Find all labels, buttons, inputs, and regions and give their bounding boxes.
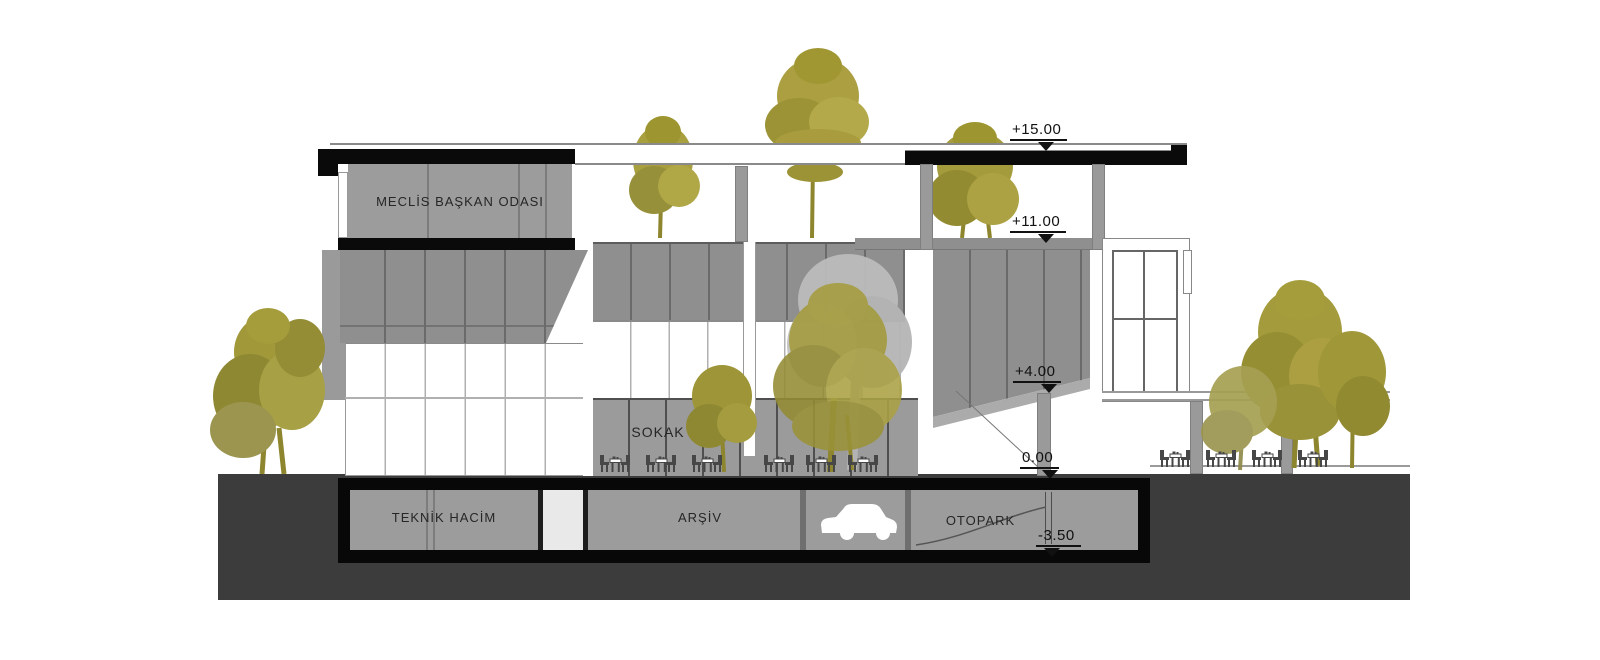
floor-edge-band [933,378,1090,428]
tree-silhouette [629,116,700,238]
canopy [1102,391,1390,401]
elevation-marker-11: +11.00 [1010,213,1066,243]
elevation-marker-minus-350: -3.50 [1036,527,1081,557]
mullion [1112,318,1178,320]
elevation-marker-15: +15.00 [1010,121,1067,151]
column [735,166,748,242]
canopy-column [1190,401,1203,474]
elevation-triangle-icon [1044,548,1060,557]
floor-slab [338,238,575,250]
window-strip [338,172,348,238]
elevation-triangle-icon [1042,470,1058,479]
left-first-floor-facade [340,250,588,343]
elevation-triangle-icon [1038,234,1054,243]
tree-silhouette [1241,280,1357,468]
column-gap [743,242,756,456]
facade-gap [583,242,593,476]
left-wall [322,250,345,400]
glazing-rail [345,397,585,399]
tree-silhouette [210,308,325,474]
elevation-label: -3.50 [1036,527,1081,547]
room-label-sokak: SOKAK [608,424,708,440]
room-label-arsiv: ARŞİV [645,510,755,525]
partition-line [800,490,806,550]
roof-slab [318,149,575,164]
room-label-meclis: MECLİS BAŞKAN ODASI [348,194,572,209]
elevation-label: +15.00 [1010,121,1067,141]
ground-line [1150,465,1410,467]
stair-shaft [538,490,588,550]
room-label-teknik-hacim: TEKNİK HACİM [350,510,538,525]
left-glazing [345,343,585,476]
elevation-label: 0.00 [1020,449,1059,469]
roof-edge-lip [318,149,338,176]
partition-line [905,490,911,550]
tree-silhouette [928,122,1019,238]
section-drawing: MECLİS BAŞKAN ODASI SOKAK TEKNİK HACİM A… [0,0,1600,660]
column [920,164,933,250]
roof-slab [905,151,1187,165]
mullion [1143,250,1145,396]
elevation-triangle-icon [1041,384,1057,393]
elevation-marker-0: 0.00 [1020,449,1059,479]
roof-edge-lip [1171,145,1187,165]
room-label-otopark: OTOPARK [928,513,1033,528]
canopy-column [1281,401,1293,474]
right-facade [933,250,1090,420]
window-frame [1112,250,1178,396]
elevation-label: +11.00 [1010,213,1066,233]
elevation-marker-4: +4.00 [1013,363,1061,393]
elevation-triangle-icon [1038,142,1054,151]
roof-band [575,150,905,165]
elevation-label: +4.00 [1013,363,1061,383]
window-tab [1183,250,1192,294]
tree-silhouette [1201,366,1277,470]
